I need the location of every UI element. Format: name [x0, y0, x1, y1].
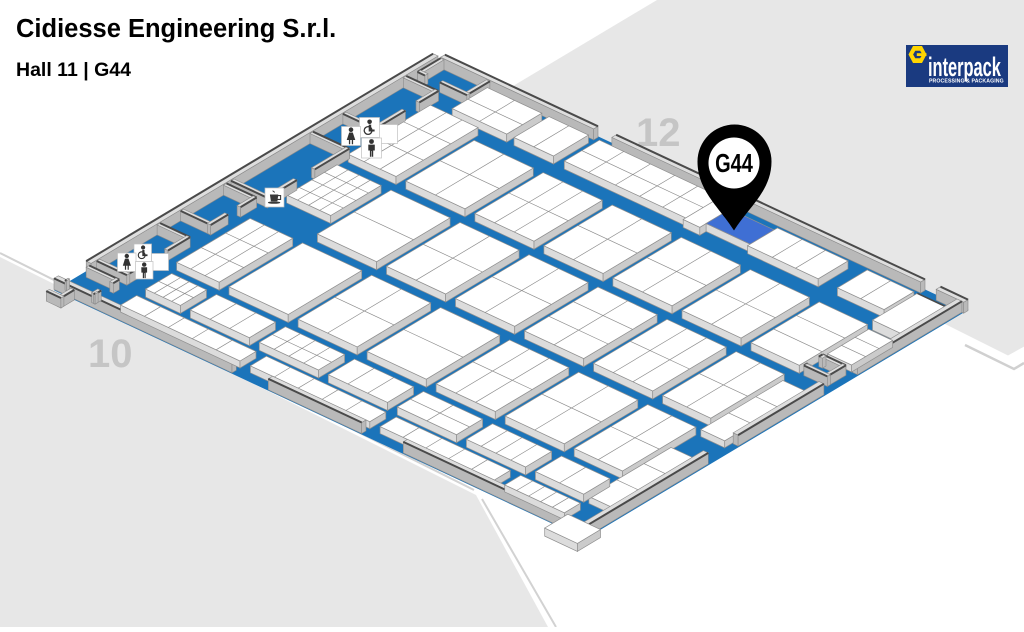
- svg-text:Hall 11 | G44: Hall 11 | G44: [16, 59, 131, 81]
- svg-text:Cidiesse Engineering S.r.l.: Cidiesse Engineering S.r.l.: [16, 15, 336, 43]
- svg-text:G44: G44: [715, 148, 753, 177]
- svg-text:10: 10: [88, 332, 133, 376]
- svg-text:PROCESSING & PACKAGING: PROCESSING & PACKAGING: [929, 79, 1004, 85]
- svg-text:interpack: interpack: [928, 52, 1001, 82]
